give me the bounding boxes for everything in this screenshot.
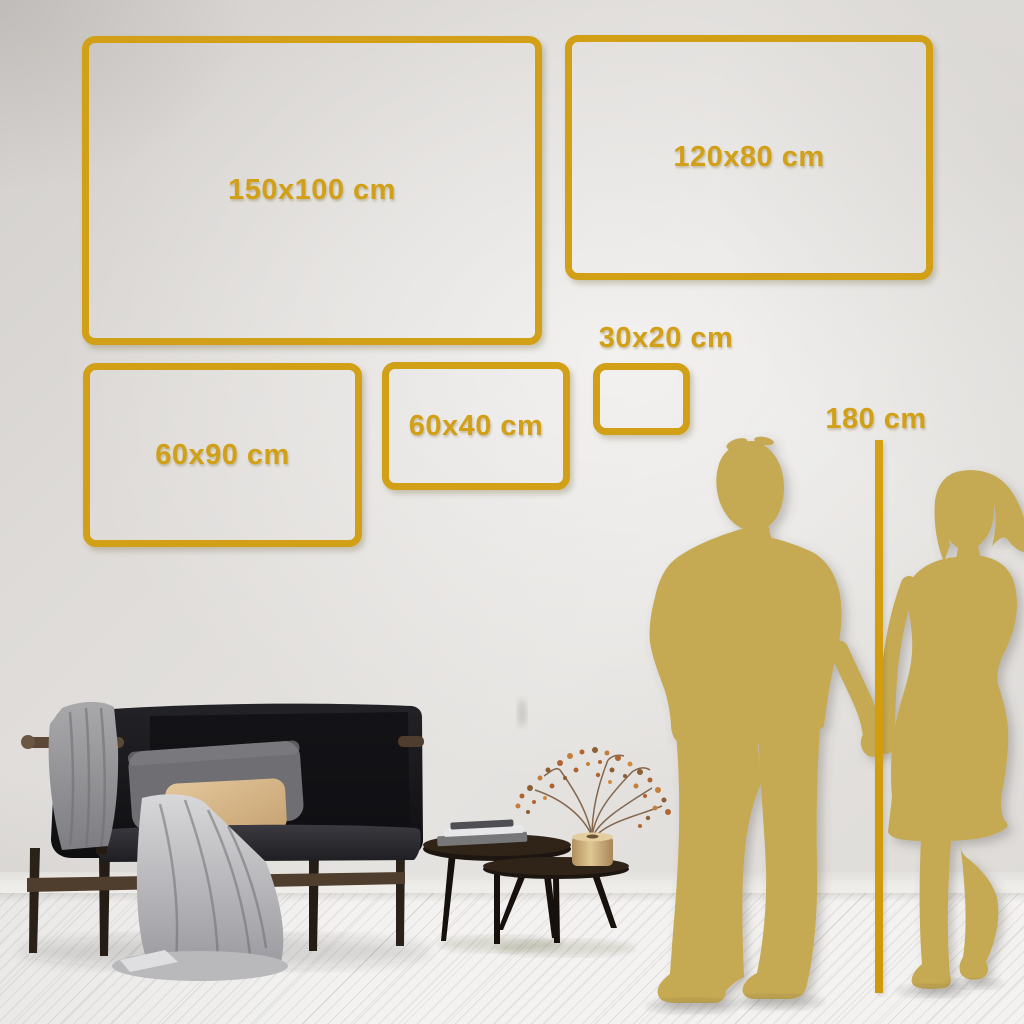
table-leg xyxy=(592,875,617,928)
wall-smudge xyxy=(517,699,527,727)
couple-silhouette xyxy=(650,435,1024,1003)
foot-shadow xyxy=(947,979,1003,989)
branch-stems xyxy=(535,755,662,838)
table-shadow xyxy=(495,940,635,956)
foot-shadow xyxy=(732,995,824,1009)
man-forearm xyxy=(839,650,873,740)
sofa xyxy=(20,702,430,981)
vase-mouth xyxy=(587,835,599,839)
man-torso xyxy=(650,527,842,745)
woman-left-leg xyxy=(912,839,951,989)
table-leg xyxy=(498,875,526,930)
sofa-leg xyxy=(309,852,319,951)
height-marker-label: 180 cm xyxy=(806,403,946,436)
sofa-wood-knob xyxy=(21,735,35,749)
foot-shadow xyxy=(646,999,738,1013)
size-guide-image: 150x100 cm 120x80 cm 60x90 cm 60x40 cm 3… xyxy=(0,0,1024,1024)
woman-silhouette xyxy=(877,470,1024,989)
throw-blanket-arm xyxy=(49,702,118,850)
woman-right-leg xyxy=(960,840,999,980)
room-scene xyxy=(0,0,1024,1024)
sofa-leg xyxy=(29,848,40,953)
table-leg xyxy=(553,877,560,943)
sofa-leg xyxy=(396,845,405,946)
man-silhouette xyxy=(650,435,884,1003)
height-marker-line xyxy=(875,440,883,993)
man-left-leg xyxy=(658,732,762,1003)
sofa-wood-armrail-right xyxy=(398,736,424,747)
man-head xyxy=(716,441,784,543)
book-stack xyxy=(436,819,527,847)
table-leg xyxy=(441,853,456,941)
